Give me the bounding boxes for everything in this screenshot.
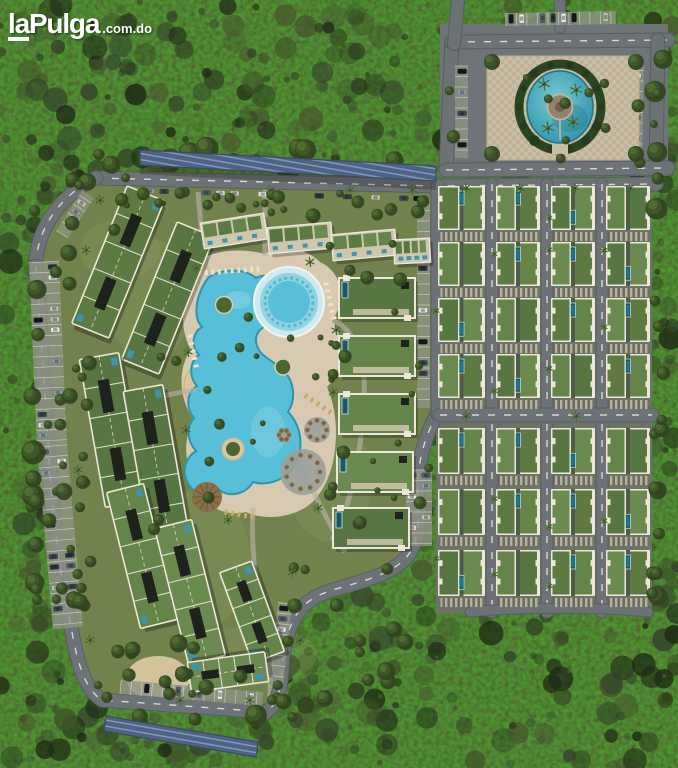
site-plan-canvas	[0, 0, 678, 768]
townhouse-block	[339, 391, 418, 438]
townhouse-row	[393, 238, 433, 268]
pool-island	[216, 297, 233, 314]
watermark-prefix: la	[8, 13, 29, 41]
pool-island	[275, 359, 291, 375]
watermark-logo: laPulga.com.do	[8, 8, 152, 41]
townhouse-row	[267, 222, 336, 258]
masterplan-rendering: laPulga.com.do	[0, 0, 678, 768]
watermark-tld: .com.do	[102, 21, 152, 36]
townhouse-block	[333, 505, 412, 552]
watermark-name: Pulga	[29, 8, 99, 40]
